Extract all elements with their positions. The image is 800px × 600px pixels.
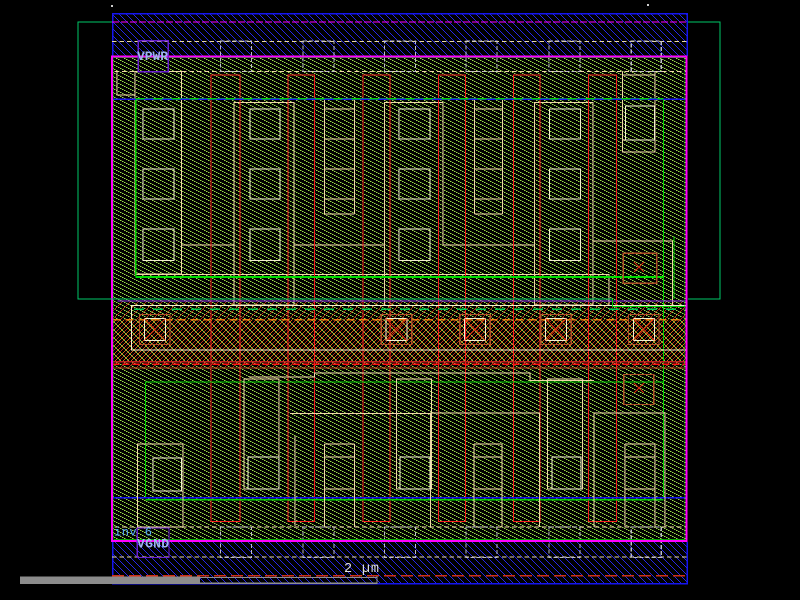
svg-text:2 µm: 2 µm [344, 562, 379, 577]
svg-text:inv 6: inv 6 [114, 526, 152, 540]
svg-text:VPWR: VPWR [137, 49, 168, 64]
